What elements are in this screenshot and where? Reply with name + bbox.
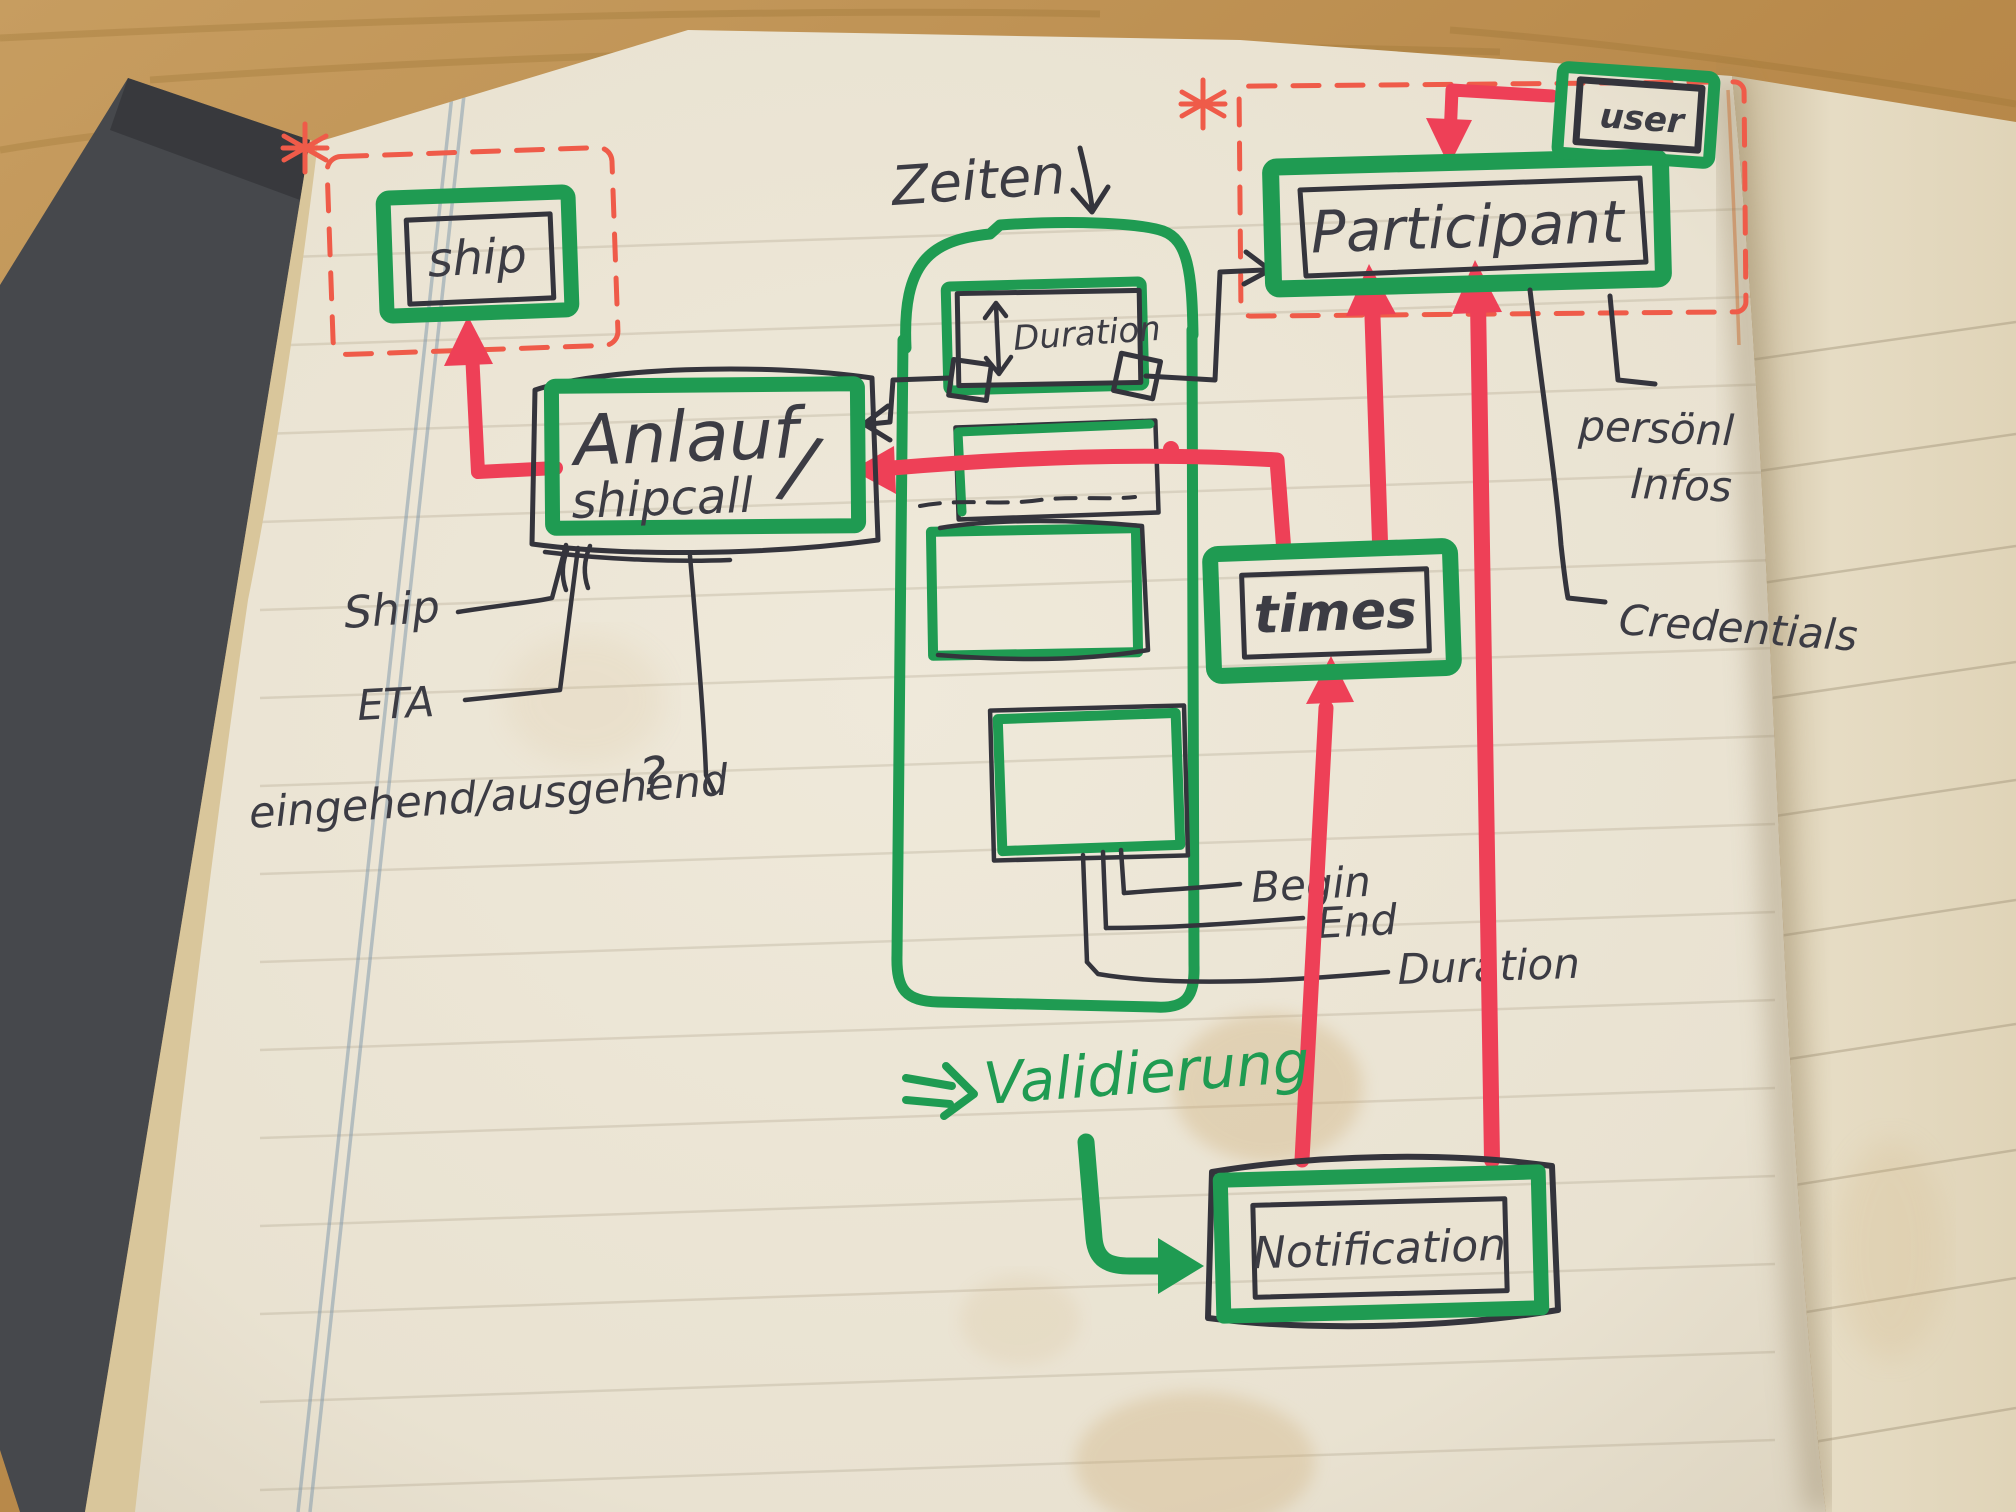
participant-label: Participant bbox=[1310, 187, 1628, 266]
shipcall-label: Anlauf bbox=[569, 392, 809, 482]
question-mark-label: ? bbox=[637, 746, 669, 808]
sketch-diagram: Zeiten Duration bbox=[0, 0, 2016, 1512]
shipcall-sublabel: shipcall bbox=[570, 468, 754, 530]
eta-attribute-label: ETA bbox=[356, 677, 436, 730]
end-attribute-label: End bbox=[1316, 895, 1399, 948]
personal-infos-label-line2: Infos bbox=[1630, 459, 1733, 512]
times-label: times bbox=[1253, 580, 1418, 646]
ship-attribute-label: Ship bbox=[342, 581, 441, 639]
notification-label: Notification bbox=[1252, 1220, 1507, 1280]
notebook-photo: Zeiten Duration bbox=[0, 0, 2016, 1512]
personal-infos-label-line1: persönl bbox=[1577, 401, 1736, 455]
ship-label: ship bbox=[426, 227, 528, 288]
zeiten-label: Zeiten bbox=[888, 143, 1068, 218]
user-label: user bbox=[1598, 96, 1687, 142]
